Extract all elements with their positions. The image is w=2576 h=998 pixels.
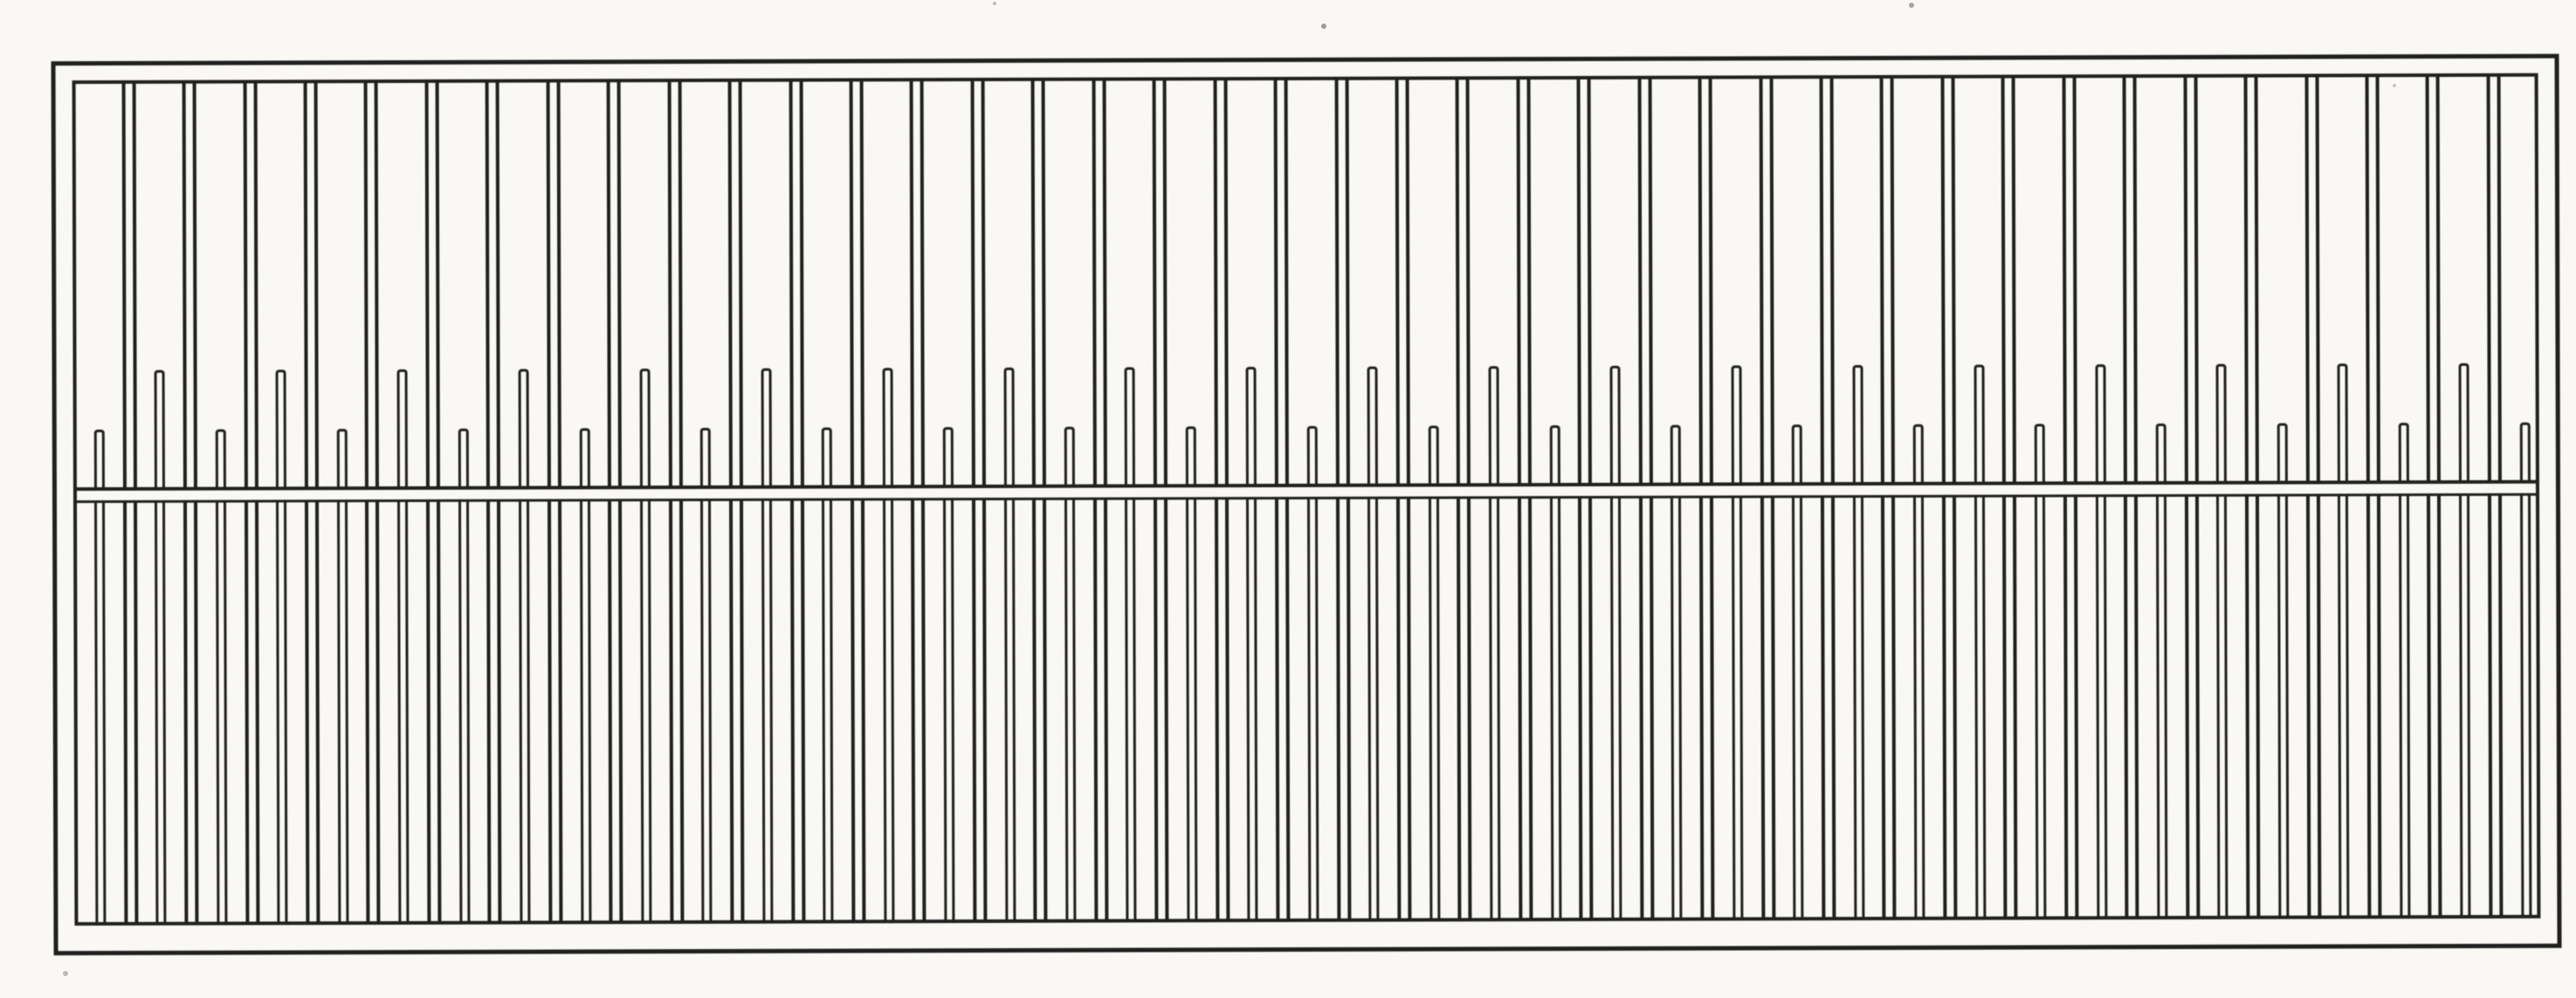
lower-tooth bbox=[1154, 499, 1168, 920]
lower-tooth bbox=[1307, 499, 1319, 920]
lower-tooth bbox=[1610, 498, 1622, 919]
tall-tooth bbox=[2183, 77, 2198, 485]
short-tooth bbox=[337, 429, 348, 490]
tall-tooth bbox=[243, 83, 258, 491]
tall-tooth bbox=[1880, 78, 1895, 485]
tall-tooth bbox=[1274, 79, 1289, 487]
lower-tooth bbox=[123, 502, 138, 924]
lower-tooth bbox=[1853, 497, 1864, 919]
lower-tooth bbox=[1578, 498, 1593, 919]
tall-tooth bbox=[2244, 77, 2259, 485]
lower-tooth bbox=[2156, 496, 2167, 918]
scan-speck bbox=[63, 971, 68, 976]
lower-tooth bbox=[1125, 499, 1136, 921]
medium-tooth bbox=[155, 370, 165, 491]
short-tooth bbox=[1064, 427, 1075, 488]
lower-tooth bbox=[1004, 499, 1016, 921]
medium-tooth bbox=[1367, 367, 1378, 487]
lower-tooth bbox=[276, 501, 287, 923]
tall-tooth bbox=[850, 80, 864, 488]
lower-tooth bbox=[2520, 495, 2531, 917]
lower-tooth bbox=[790, 500, 805, 922]
short-tooth bbox=[1428, 425, 1438, 486]
lower-tooth bbox=[2338, 495, 2349, 917]
lower-tooth bbox=[580, 500, 591, 922]
tall-tooth bbox=[1820, 78, 1835, 485]
tall-tooth bbox=[486, 82, 500, 490]
tall-tooth bbox=[364, 82, 379, 490]
tall-tooth bbox=[304, 82, 319, 490]
tall-tooth bbox=[2486, 76, 2501, 484]
scan-speck bbox=[2393, 84, 2396, 87]
tall-tooth bbox=[2366, 76, 2380, 484]
tall-tooth bbox=[910, 80, 925, 488]
tall-tooth bbox=[2062, 77, 2077, 485]
lower-tooth bbox=[2124, 496, 2139, 918]
medium-tooth bbox=[276, 369, 286, 490]
tall-tooth bbox=[2123, 77, 2138, 485]
lower-tooth bbox=[426, 501, 441, 923]
lower-tooth bbox=[2002, 497, 2017, 919]
medium-tooth bbox=[1973, 365, 1984, 485]
lower-tooth bbox=[943, 499, 954, 921]
lower-tooth bbox=[1792, 497, 1803, 919]
short-tooth bbox=[1186, 426, 1196, 487]
tall-tooth bbox=[2426, 76, 2441, 484]
lower-tooth bbox=[2216, 496, 2228, 918]
lower-tooth bbox=[1489, 498, 1500, 919]
lower-tooth bbox=[1275, 499, 1290, 920]
short-tooth bbox=[1913, 424, 1924, 485]
short-tooth bbox=[943, 427, 954, 488]
lower-tooth bbox=[305, 501, 320, 923]
lower-tooth bbox=[519, 501, 530, 923]
scan-speck bbox=[993, 2, 996, 5]
short-tooth bbox=[458, 429, 468, 490]
lower-tooth bbox=[1670, 498, 1682, 919]
lower-tooth bbox=[397, 501, 409, 923]
lower-tooth bbox=[1457, 498, 1471, 919]
lower-tooth bbox=[2427, 495, 2442, 917]
medium-tooth bbox=[2095, 364, 2105, 485]
medium-tooth bbox=[2338, 363, 2348, 484]
tall-tooth bbox=[1092, 80, 1106, 488]
lower-tooth bbox=[1550, 498, 1561, 919]
medium-tooth bbox=[1125, 368, 1135, 488]
lower-tooth bbox=[548, 500, 562, 922]
tall-tooth bbox=[2001, 78, 2016, 485]
lower-tooth bbox=[2096, 496, 2107, 918]
short-tooth bbox=[2519, 423, 2530, 484]
tall-tooth bbox=[1153, 79, 1167, 487]
medium-tooth bbox=[1610, 366, 1621, 486]
medium-tooth bbox=[1852, 365, 1863, 485]
tall-tooth bbox=[1759, 78, 1774, 485]
lower-tooth bbox=[183, 502, 198, 924]
medium-tooth bbox=[761, 368, 771, 489]
lower-tooth bbox=[729, 500, 744, 922]
tall-tooth bbox=[1031, 80, 1046, 488]
lower-tooth bbox=[700, 500, 712, 922]
lower-tooth bbox=[155, 502, 166, 924]
tall-tooth bbox=[183, 83, 197, 491]
medium-tooth bbox=[640, 368, 651, 489]
lower-tooth bbox=[1336, 499, 1351, 920]
tall-tooth bbox=[607, 81, 622, 489]
lower-tooth bbox=[1881, 497, 1896, 919]
lower-teeth-row bbox=[0, 0, 2574, 3]
lower-tooth bbox=[2366, 495, 2381, 917]
lower-tooth bbox=[1429, 498, 1440, 919]
lower-tooth bbox=[1760, 497, 1775, 919]
tall-tooth bbox=[728, 81, 743, 489]
lower-tooth bbox=[1032, 499, 1047, 921]
lower-tooth bbox=[1942, 497, 1957, 919]
short-tooth bbox=[2156, 423, 2166, 485]
lower-tooth bbox=[245, 501, 259, 923]
lower-tooth bbox=[851, 499, 865, 921]
lower-tooth bbox=[486, 501, 501, 923]
tall-tooth bbox=[1698, 79, 1713, 486]
lower-tooth bbox=[2063, 496, 2078, 918]
medium-tooth bbox=[2216, 364, 2227, 485]
lower-tooth bbox=[1215, 499, 1229, 920]
medium-tooth bbox=[882, 368, 892, 488]
lower-tooth bbox=[458, 501, 470, 923]
lower-tooth bbox=[822, 500, 833, 922]
lower-tooth bbox=[1246, 499, 1257, 920]
lower-tooth bbox=[2488, 495, 2503, 917]
lower-tooth bbox=[1186, 499, 1197, 920]
tall-tooth bbox=[1456, 79, 1471, 486]
tall-tooth bbox=[1516, 79, 1531, 486]
lower-tooth bbox=[1093, 499, 1108, 921]
lower-tooth bbox=[1396, 499, 1411, 920]
tall-tooth bbox=[1395, 79, 1410, 487]
scan-speck bbox=[1909, 3, 1914, 8]
lower-tooth bbox=[2277, 496, 2289, 918]
lower-tooth bbox=[1064, 499, 1076, 921]
tall-tooth bbox=[970, 80, 985, 488]
lower-tooth bbox=[2306, 495, 2321, 917]
lower-tooth bbox=[883, 499, 894, 921]
lower-tooth bbox=[1974, 497, 1986, 919]
tall-tooth bbox=[789, 81, 803, 489]
tall-tooth bbox=[1213, 79, 1228, 487]
lower-tooth bbox=[1367, 499, 1379, 920]
lower-tooth bbox=[2459, 495, 2470, 917]
lower-tooth bbox=[640, 500, 651, 922]
lower-tooth bbox=[1699, 498, 1714, 919]
medium-tooth bbox=[2459, 363, 2469, 484]
lower-tooth bbox=[216, 502, 227, 924]
short-tooth bbox=[2277, 423, 2288, 485]
lower-tooth bbox=[669, 500, 684, 922]
lower-tooth bbox=[1518, 498, 1533, 919]
lower-tooth bbox=[761, 500, 773, 922]
tall-tooth bbox=[121, 83, 136, 491]
lower-tooth bbox=[365, 501, 380, 923]
lower-tooth bbox=[2399, 495, 2410, 917]
lower-tooth bbox=[2245, 496, 2260, 918]
lower-tooth bbox=[337, 501, 348, 923]
short-tooth bbox=[822, 428, 832, 489]
lower-tooth bbox=[1913, 497, 1925, 919]
tall-tooth bbox=[424, 82, 439, 490]
medium-tooth bbox=[1003, 368, 1014, 488]
short-tooth bbox=[579, 428, 589, 489]
tall-tooth bbox=[1637, 79, 1652, 486]
medium-tooth bbox=[1246, 367, 1257, 487]
tall-tooth bbox=[1940, 78, 1955, 485]
lower-tooth bbox=[1821, 497, 1836, 919]
lower-tooth bbox=[1732, 497, 1743, 919]
scan-speck bbox=[1321, 24, 1326, 29]
medium-tooth bbox=[397, 369, 408, 490]
short-tooth bbox=[216, 430, 226, 491]
tall-tooth bbox=[546, 81, 561, 489]
lower-tooth bbox=[2035, 496, 2046, 918]
short-tooth bbox=[1549, 425, 1560, 486]
short-tooth bbox=[2398, 423, 2408, 484]
lower-tooth bbox=[608, 500, 623, 922]
scanned-page bbox=[0, 0, 2576, 998]
medium-tooth bbox=[1731, 365, 1741, 485]
lower-tooth bbox=[94, 502, 106, 924]
short-tooth bbox=[94, 430, 105, 491]
short-tooth bbox=[1307, 426, 1318, 487]
upper-teeth-row bbox=[0, 0, 2574, 3]
medium-tooth bbox=[519, 369, 529, 490]
tall-tooth bbox=[667, 81, 682, 489]
short-tooth bbox=[700, 428, 711, 489]
lower-tooth bbox=[2185, 496, 2200, 918]
short-tooth bbox=[2035, 423, 2045, 485]
tall-tooth bbox=[1577, 79, 1592, 486]
medium-tooth bbox=[1489, 366, 1499, 486]
patent-figure-drawing bbox=[0, 0, 2576, 998]
tall-tooth bbox=[1334, 79, 1349, 487]
lower-tooth bbox=[1639, 498, 1654, 919]
short-tooth bbox=[1792, 424, 1802, 485]
tall-tooth bbox=[2304, 76, 2319, 484]
lower-tooth bbox=[972, 499, 987, 921]
short-tooth bbox=[1670, 425, 1681, 486]
lower-tooth bbox=[911, 499, 926, 921]
